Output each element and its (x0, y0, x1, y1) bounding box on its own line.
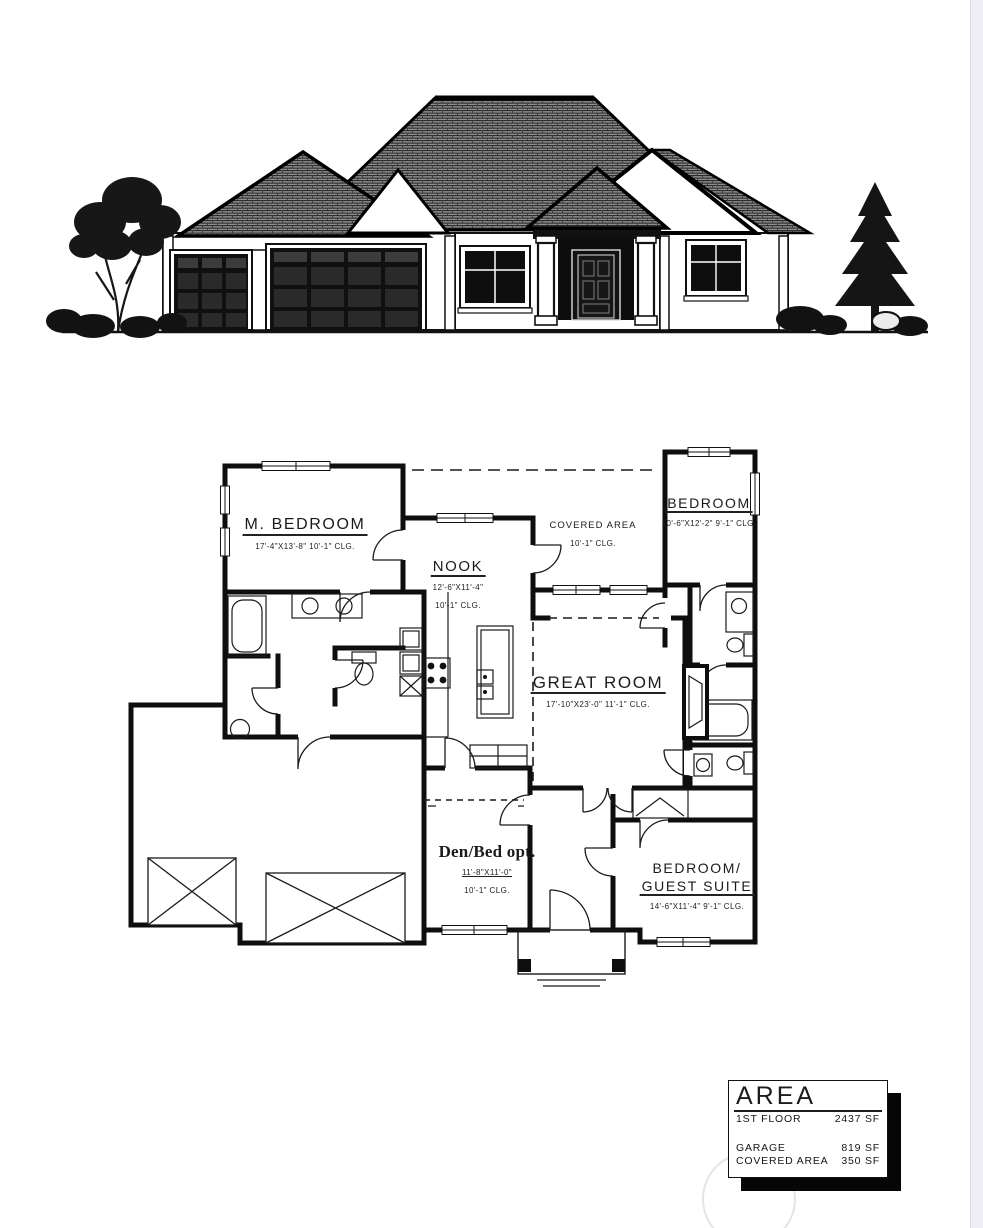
room-dims: 17'-4"X13'-8" 10'-1" CLG. (255, 542, 355, 551)
right-tree (835, 182, 915, 331)
spacer (734, 1127, 882, 1142)
area-row-label: GARAGE (736, 1142, 786, 1156)
elevation-window-left (458, 246, 532, 313)
area-table: AREA 1ST FLOOR 2437 SF GARAGE 819 SF COV… (728, 1080, 888, 1178)
porch-column (518, 959, 531, 972)
elevation-window-right (684, 240, 748, 301)
garage-door-double (266, 244, 426, 330)
buffet-cabinet (470, 745, 527, 768)
sink (697, 759, 710, 772)
fireplace (684, 666, 707, 738)
kitchen-island (477, 626, 513, 718)
portico-column-left (538, 243, 554, 318)
room-label-guest-suite: BEDROOM/ GUEST SUITE 14'-6"X11'-4" 9'-1"… (640, 860, 755, 914)
area-table-rule (734, 1110, 882, 1112)
room-label-bedroom: BEDROOM 10'-6"X12'-2" 9'-1" CLG. (662, 495, 757, 531)
area-row-value: 350 SF (841, 1155, 880, 1169)
room-label-covered-area: COVERED AREA 10'-1" CLG. (548, 515, 639, 551)
room-label-great-room: GREAT ROOM 17'-10"X23'-0" 11'-1" CLG. (531, 674, 666, 712)
architectural-plan-sheet: M. BEDROOM 17'-4"X13'-8" 10'-1" CLG. NOO… (0, 0, 983, 1228)
area-row-label: COVERED AREA (736, 1155, 828, 1169)
room-name: BEDROOM (665, 496, 753, 513)
room-label-nook: NOOK 12'-6"X11'-4" 10'-1" CLG. (431, 558, 486, 613)
room-name: Den/Bed opt. (439, 842, 536, 862)
area-row-garage: GARAGE 819 SF (734, 1142, 882, 1156)
plan-linework (0, 0, 983, 1228)
porch-column (612, 959, 625, 972)
room-name: GREAT ROOM (531, 674, 666, 694)
area-row-label: 1ST FLOOR (736, 1113, 801, 1127)
guest-closet (633, 790, 688, 818)
area-row-1st-floor: 1ST FLOOR 2437 SF (734, 1113, 882, 1127)
area-row-value: 819 SF (841, 1142, 880, 1156)
room-dims: 11'-8"X11'-0" (462, 868, 512, 877)
room-label-m-bedroom: M. BEDROOM 17'-4"X13'-8" 10'-1" CLG. (243, 516, 368, 554)
toilet (727, 752, 753, 774)
rock (872, 312, 900, 330)
elevation-roofs (178, 98, 810, 236)
room-name: NOOK (431, 559, 486, 577)
sink (732, 599, 747, 614)
room-name: M. BEDROOM (243, 517, 368, 536)
area-row-covered-area: COVERED AREA 350 SF (734, 1155, 882, 1169)
entry-porch (518, 930, 625, 986)
area-row-value: 2437 SF (835, 1113, 880, 1127)
toilet (352, 652, 376, 685)
room-name: COVERED AREA (548, 521, 639, 531)
sink (302, 598, 318, 614)
room-dims: 12'-6"X11'-4" (433, 583, 484, 592)
room-label-den: Den/Bed opt. 11'-8"X11'-0" 10'-1" CLG. (439, 842, 536, 898)
room-name-line2: GUEST SUITE (640, 879, 755, 896)
room-dims: 14'-6"X11'-4" 9'-1" CLG. (650, 902, 744, 911)
area-table-title: AREA (734, 1084, 882, 1109)
room-dims: 10'-6"X12'-2" 9'-1" CLG. (662, 519, 757, 528)
portico-column-right (638, 243, 654, 318)
room-ceiling: 10'-1" CLG. (435, 601, 481, 610)
room-dims: 17'-10"X23'-0" 11'-1" CLG. (546, 700, 650, 709)
master-bath-fixtures (228, 594, 422, 739)
front-door (572, 250, 620, 320)
laundry-appliances (400, 628, 422, 696)
garage-doors-plan (148, 858, 405, 943)
toilet (727, 634, 753, 656)
range (424, 658, 450, 688)
front-elevation-drawing (46, 98, 928, 338)
page-right-edge-band (970, 0, 983, 1228)
kitchen-fixtures (424, 592, 527, 768)
room-ceiling: 10'-1" CLG. (464, 886, 510, 895)
room-name: BEDROOM/ (650, 861, 743, 876)
room-ceiling: 10'-1" CLG. (570, 539, 616, 548)
